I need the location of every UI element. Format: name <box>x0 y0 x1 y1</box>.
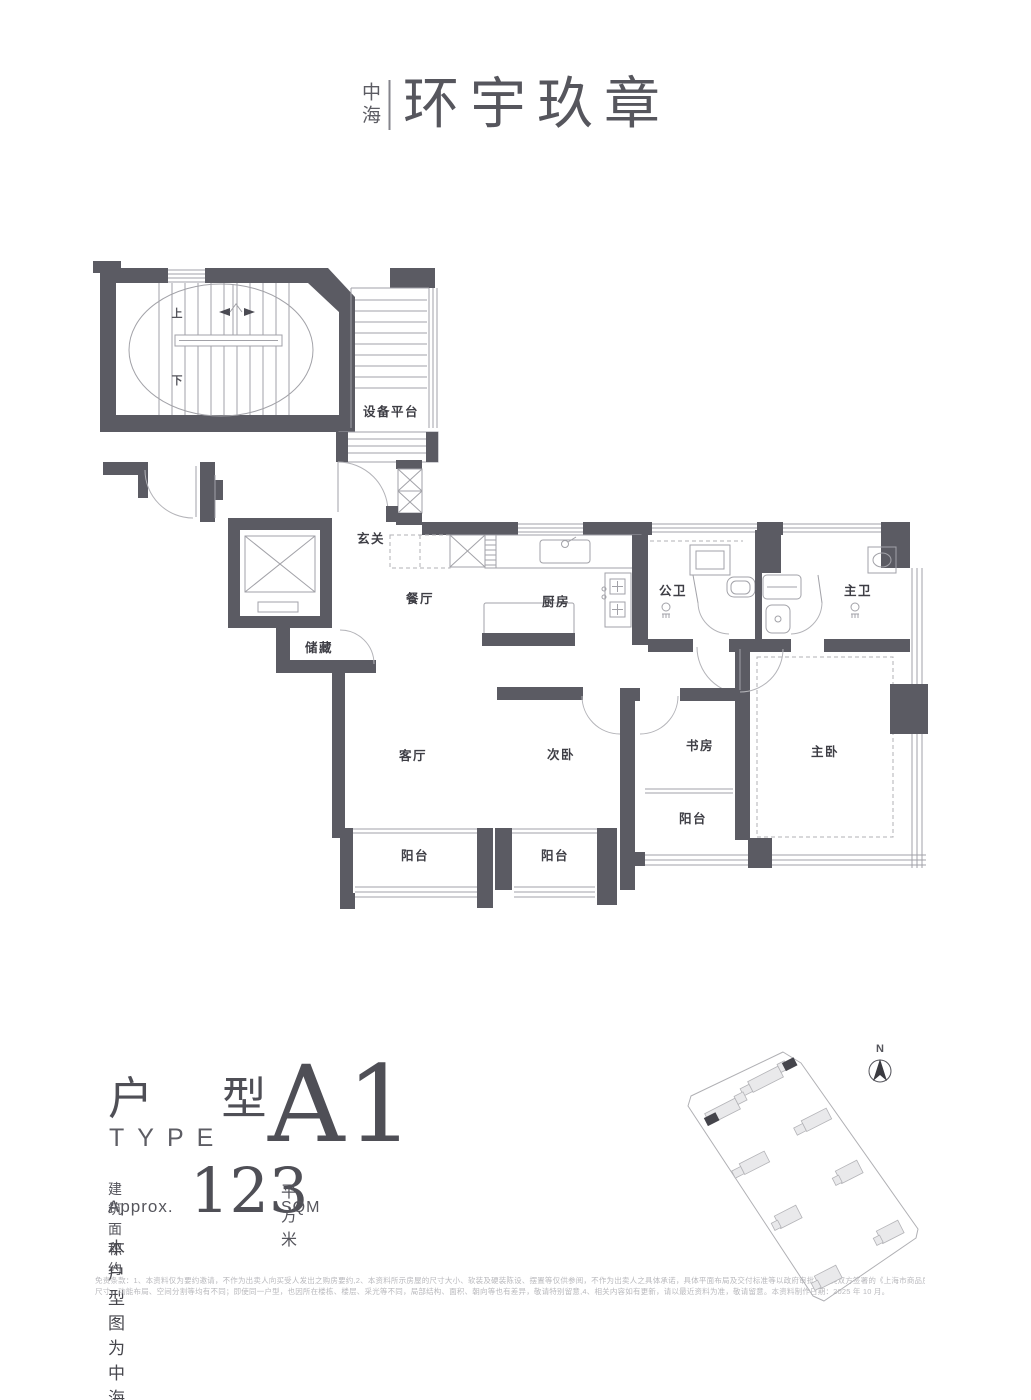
entry-door <box>338 462 398 522</box>
room-label-living: 客厅 <box>398 748 427 763</box>
room-label-study: 书房 <box>686 738 714 753</box>
logo-brand: 中海 <box>360 82 379 128</box>
room-label-stairs-up: 上 <box>172 306 183 320</box>
compass: N <box>869 1043 891 1082</box>
kitchen-sink <box>540 540 590 563</box>
room-label-equipment-platform: 设备平台 <box>363 404 419 419</box>
lobby <box>103 462 223 522</box>
type-title-en: TYPE <box>109 1124 226 1153</box>
type-code: A1 <box>268 1052 416 1158</box>
room-label-balcony-second: 阳台 <box>541 848 569 863</box>
room-label-public-bath: 公卫 <box>659 584 687 598</box>
equipment-platform: 设备平台 <box>336 268 438 462</box>
room-label-stairs-down: 下 <box>172 374 183 387</box>
stove <box>602 573 631 627</box>
room-label-dining: 餐厅 <box>405 591 434 606</box>
study-balcony: 阳台 <box>645 789 733 826</box>
second-balcony: 阳台 <box>495 828 617 905</box>
type-title-cn: 户 型 <box>108 1062 295 1127</box>
north-label: N <box>876 1043 884 1055</box>
site-plan: N <box>670 1030 970 1320</box>
room-label-master-bedroom: 主卧 <box>811 744 839 759</box>
kitchen: 厨房 <box>390 535 648 646</box>
logo-name: 环宇玖章 <box>403 74 671 136</box>
location-prefix: 本户型图为中海环宇玖章8 <box>108 1239 128 1400</box>
north-arrow-icon <box>873 1059 887 1081</box>
area-unit-en: SQM <box>281 1199 320 1217</box>
room-label-balcony-study: 阳台 <box>679 811 707 826</box>
area-label-en: Approx. <box>108 1197 174 1217</box>
location-line: 本户型图为中海环宇玖章8#单元901室 <box>108 1234 144 1400</box>
living-balcony: 阳台 <box>340 828 493 909</box>
logo-divider <box>388 80 390 130</box>
site-buildings <box>704 1061 904 1292</box>
elevator <box>228 518 332 628</box>
floorplan-page: 中海 环宇玖章 <box>0 0 1031 1400</box>
room-label-master-bath: 主卫 <box>844 583 872 598</box>
stairwell: 上 下 <box>93 261 355 432</box>
floor-plan: 上 下 设备平台 <box>93 255 938 915</box>
living-left-wall <box>332 664 345 838</box>
site-boundary <box>688 1052 918 1301</box>
room-label-storage: 储藏 <box>304 640 333 655</box>
shower <box>766 605 790 633</box>
room-label-kitchen: 厨房 <box>542 594 570 609</box>
logo: 中海 环宇玖章 <box>360 74 671 136</box>
room-label-balcony-living: 阳台 <box>401 848 429 863</box>
room-label-entry: 玄关 <box>357 531 385 546</box>
room-label-second-bedroom: 次卧 <box>547 747 575 762</box>
public-bathroom: 公卫 <box>648 541 755 652</box>
stair-treads <box>159 283 289 415</box>
vent-shaft <box>396 460 422 525</box>
storage-room: 储藏 <box>276 628 376 673</box>
